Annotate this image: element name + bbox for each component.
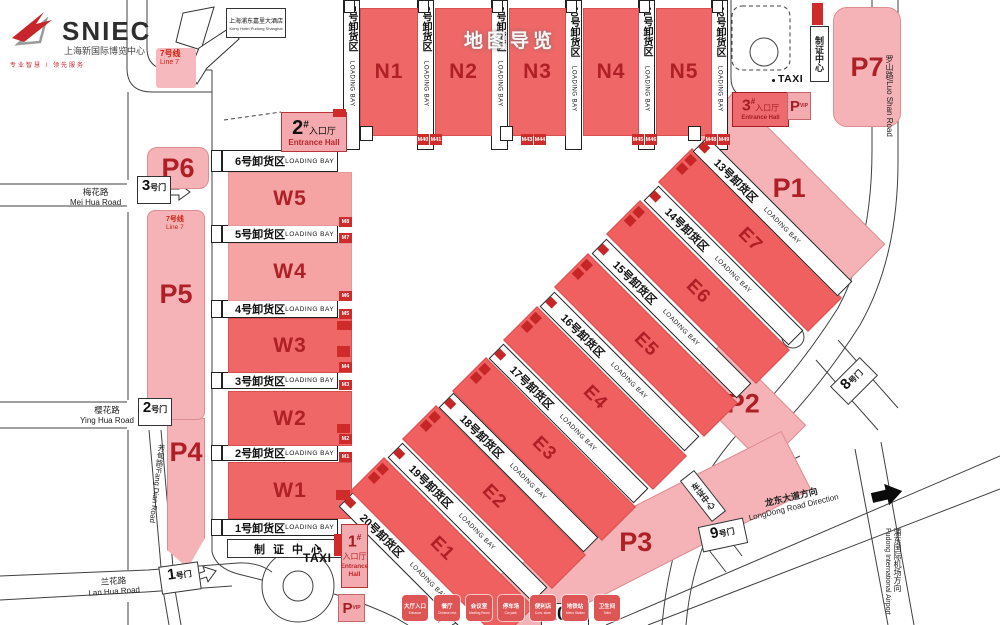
legend: 大厅入口Entrance 餐厅Chinese rest. 会议室Meeting … [402, 595, 620, 621]
m-code-m48: M48 [705, 134, 717, 145]
legend-metro-station: 地铁站Metro Station [562, 595, 588, 621]
taxi-label-bottom: TAXI [303, 551, 331, 565]
parking-p5: P5 [147, 210, 205, 420]
bay-left-tab [211, 445, 222, 461]
hall-n1: N1 [360, 8, 418, 136]
hall-w4: W4 [228, 243, 352, 301]
entrance-hall-2: 2#入口厅 Entrance Hall [281, 112, 347, 152]
hall-w1: W1 [228, 462, 352, 519]
brand-name: SNIEC [62, 16, 151, 47]
entrance-hall-1: 1# 入口厅 Entrance Hall [341, 524, 368, 588]
m-code-m2: M2 [339, 434, 352, 444]
sniec-logo-icon [12, 12, 52, 44]
hall-notch [688, 126, 701, 141]
bay-left-tab [211, 225, 222, 243]
loading-bay-1: 1号卸货区LOADING BAY [222, 519, 338, 536]
m-code-m46: M46 [645, 134, 657, 145]
checkpoint-tab [334, 534, 342, 556]
checkpoint-tab [333, 109, 346, 117]
legend-entrance: 大厅入口Entrance [402, 595, 428, 621]
legend-toilet: 卫生间Toilet [594, 595, 620, 621]
m-code-m3: M3 [339, 380, 352, 390]
bay-top-tab [492, 0, 503, 13]
bay-left-tab [211, 372, 222, 389]
m-code-m45: M45 [632, 134, 644, 145]
parking-p4: P4 [167, 418, 205, 568]
vip-parking-bottom: PVIP [338, 594, 365, 622]
hall-n4: N4 [583, 8, 639, 136]
hall-w3: W3 [228, 318, 352, 373]
loading-bay-10: 10号卸货区LOADING BAY [565, 0, 582, 150]
road-label-airport: Pudong International Airport 浦东国际机场方向 [884, 528, 903, 625]
gate-1: 1号门 [158, 561, 202, 594]
m-code-m1: M1 [339, 452, 352, 462]
m-code-m41: M41 [430, 134, 442, 145]
entrance-hall-3: 3#入口厅 Entrance Hall [732, 92, 789, 127]
hotel-box: 上海浦东嘉里大酒店 Kerry Hotel Pudong Shanghai [226, 8, 286, 38]
m-code-tab [336, 490, 350, 500]
bay-top-tab [712, 0, 723, 13]
bay-left-tab [211, 300, 222, 318]
m-code-m44: M44 [534, 134, 546, 145]
bay-top-tab [639, 0, 650, 13]
hall-n5: N5 [656, 8, 712, 136]
legend-store: 便利店Conv. store [530, 595, 556, 621]
checkpoint-tab [812, 3, 823, 25]
loading-bay-5: 5号卸货区LOADING BAY [222, 225, 338, 243]
bay-left-tab [211, 150, 222, 172]
vip-parking-top: PVIP [787, 92, 811, 120]
bay-left-tab [211, 519, 222, 536]
taxi-dot-top [772, 79, 775, 82]
m-code-m7: M7 [339, 233, 352, 243]
hotel-name-cn: 上海浦东嘉里大酒店 [229, 16, 283, 25]
loading-bay-12: 12号卸货区LOADING BAY [711, 0, 728, 150]
legend-restaurant: 餐厅Chinese rest. [434, 595, 460, 621]
road-label-lanhua: 兰花路Lan Hua Road [87, 574, 140, 598]
m-code-m40: M40 [417, 134, 429, 145]
loading-bay-2: 2号卸货区LOADING BAY [222, 445, 338, 461]
m-code-tab [337, 346, 350, 357]
legend-car-park: 停车场Car park [498, 595, 524, 621]
m-code-m49: M49 [718, 134, 730, 145]
hall-w2: W2 [228, 391, 352, 446]
metro-line-cn: 7号线 [160, 50, 196, 59]
hall-w5: W5 [228, 172, 352, 226]
taxi-label-top: TAXI [778, 73, 803, 85]
gate-2: 2号门 [138, 398, 172, 426]
sniec-venue-map: SNIEC 上海新国际博览中心 专业智慧 / 领先服务 上海浦东嘉里大酒店 Ke… [0, 0, 1000, 625]
road-label-yinghua: 樱花路Ying Hua Road [80, 405, 134, 426]
bay-top-tab [418, 0, 429, 13]
loading-bay-11: 11号卸货区LOADING BAY [638, 0, 655, 150]
brand-subtitle: 上海新国际博览中心 [64, 44, 145, 57]
road-label-meihua: 梅花路Mei Hua Road [70, 187, 121, 208]
bay-top-tab [566, 0, 577, 13]
m-code-tab [337, 424, 350, 433]
hall-notch [500, 126, 513, 141]
hotel-name-en: Kerry Hotel Pudong Shanghai [230, 26, 283, 31]
m-code-m43: M43 [521, 134, 533, 145]
metro-line-en: Line 7 [160, 59, 196, 67]
m-code-m6: M6 [339, 291, 352, 301]
loading-bay-6: 6号卸货区LOADING BAY [222, 150, 338, 172]
loading-bay-3: 3号卸货区LOADING BAY [222, 372, 338, 389]
map-watermark: 地图导览 [464, 26, 556, 53]
legend-meeting-room: 会议室Meeting Room [466, 595, 492, 621]
m-code-m5: M5 [339, 309, 352, 319]
gate-3: 3号门 [137, 176, 171, 204]
loading-bay-4: 4号卸货区LOADING BAY [222, 300, 338, 318]
m-code-m4: M4 [339, 362, 352, 372]
m-code-m8: M8 [339, 217, 352, 227]
taxi-dot-bottom [317, 547, 320, 550]
road-label-luoshan: 罗山路/Luo Shan Road [884, 55, 895, 150]
metro-badge-left: 7号线 Line 7 [166, 216, 184, 231]
bay-top-tab [344, 0, 355, 13]
entrance-hall-1-en: Entrance Hall [341, 563, 369, 579]
loading-bay-8: 8号卸货区LOADING BAY [417, 0, 434, 150]
metro-badge-top: 7号线 Line 7 [156, 48, 196, 88]
hall-notch [360, 126, 373, 141]
m-code-tab [337, 321, 352, 330]
permit-center-box-top: 制证中心 [810, 26, 829, 82]
brand-tagline: 专业智慧 / 领先服务 [10, 60, 85, 69]
